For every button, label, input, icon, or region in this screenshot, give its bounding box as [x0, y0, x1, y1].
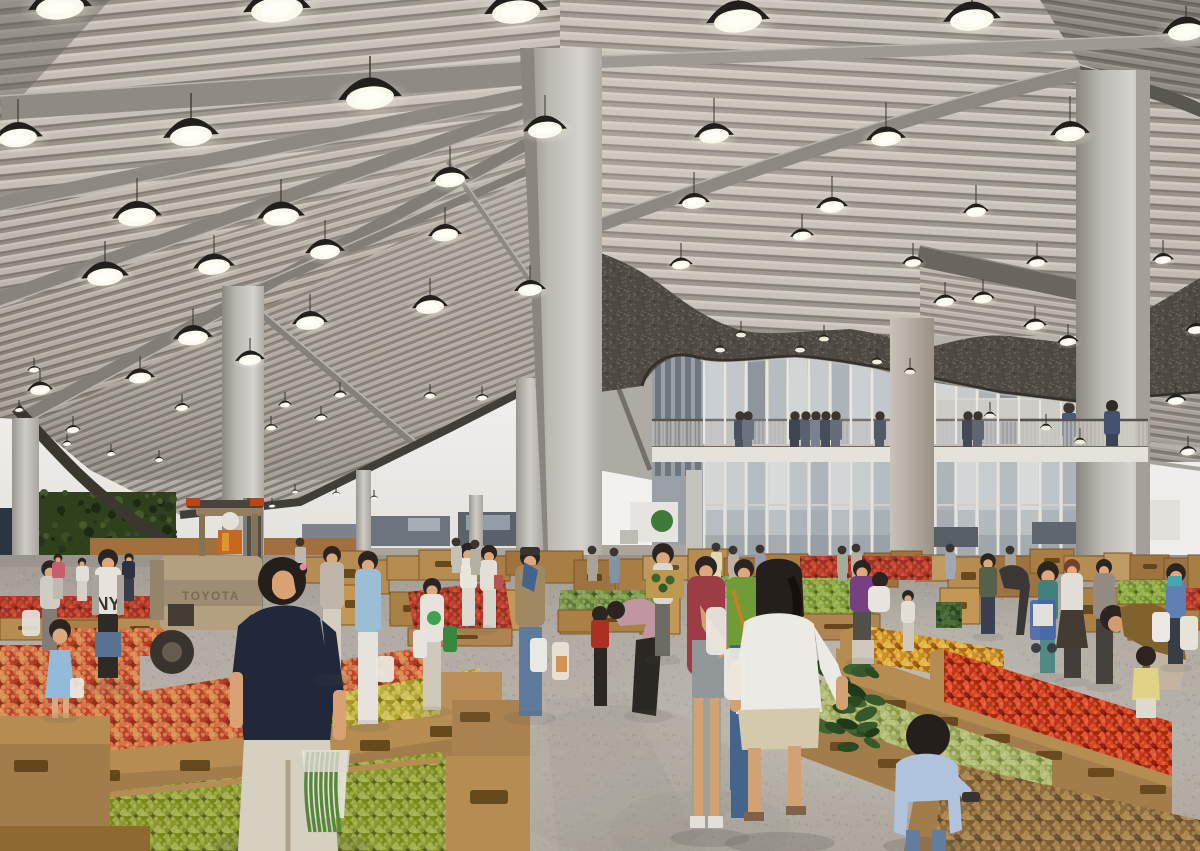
svg-text:NY: NY [95, 594, 120, 614]
svg-text:TOYOTA: TOYOTA [182, 589, 240, 603]
